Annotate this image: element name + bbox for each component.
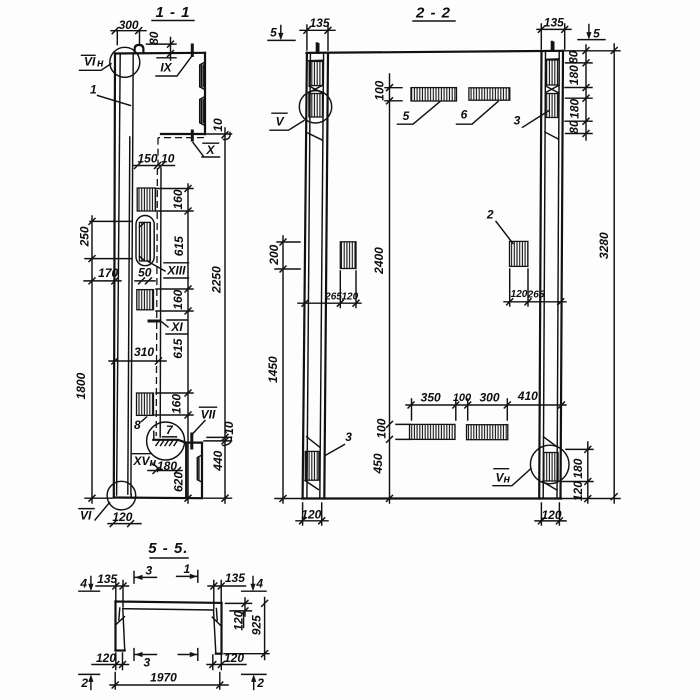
svg-text:80: 80: [147, 31, 161, 45]
svg-text:10: 10: [161, 152, 175, 166]
svg-text:2250: 2250: [210, 266, 224, 294]
svg-text:3280: 3280: [597, 232, 611, 259]
svg-text:120: 120: [511, 289, 528, 300]
svg-text:80: 80: [567, 50, 581, 64]
svg-text:50: 50: [138, 265, 152, 279]
svg-text:1450: 1450: [266, 356, 280, 383]
svg-text:160: 160: [171, 289, 185, 309]
svg-text:н: н: [97, 58, 104, 70]
svg-text:135: 135: [97, 572, 117, 586]
svg-text:100: 100: [374, 418, 388, 438]
svg-text:7: 7: [166, 423, 174, 437]
svg-text:XI: XI: [170, 320, 183, 334]
svg-text:135: 135: [544, 15, 564, 29]
svg-text:180: 180: [568, 98, 582, 118]
svg-text:X: X: [205, 143, 215, 157]
svg-text:6: 6: [461, 108, 468, 122]
svg-text:120: 120: [224, 651, 244, 665]
svg-text:1800: 1800: [74, 372, 88, 399]
svg-text:620: 620: [172, 472, 186, 492]
svg-text:XV: XV: [132, 454, 150, 468]
svg-text:VI: VI: [84, 55, 96, 69]
svg-text:4: 4: [255, 577, 263, 591]
svg-text:135: 135: [225, 571, 245, 585]
svg-text:120: 120: [231, 610, 245, 630]
svg-text:3: 3: [514, 114, 521, 128]
svg-text:VII: VII: [201, 407, 216, 421]
svg-text:410: 410: [517, 389, 538, 403]
svg-text:VI: VI: [80, 508, 92, 522]
svg-text:180: 180: [567, 65, 581, 85]
svg-text:3: 3: [145, 563, 152, 577]
svg-text:2: 2: [80, 676, 88, 690]
svg-text:2: 2: [256, 676, 264, 690]
svg-text:180: 180: [157, 459, 177, 473]
svg-text:н: н: [150, 457, 157, 469]
svg-text:300: 300: [479, 391, 499, 405]
svg-text:3: 3: [345, 430, 352, 444]
svg-text:160: 160: [171, 189, 185, 209]
svg-text:310: 310: [134, 345, 154, 359]
svg-text:100: 100: [373, 80, 387, 100]
svg-text:135: 135: [309, 16, 329, 30]
svg-text:2400: 2400: [372, 247, 386, 275]
svg-text:160: 160: [170, 394, 184, 414]
svg-text:180: 180: [571, 458, 585, 478]
svg-text:5: 5: [593, 27, 600, 41]
svg-text:120: 120: [341, 291, 358, 302]
svg-text:120: 120: [301, 508, 321, 522]
svg-text:120: 120: [541, 508, 561, 522]
svg-text:170: 170: [98, 266, 118, 280]
svg-text:100: 100: [453, 392, 472, 404]
svg-text:440: 440: [211, 450, 225, 471]
svg-text:3: 3: [144, 655, 151, 669]
svg-text:10: 10: [211, 118, 225, 132]
svg-text:XIII: XIII: [166, 264, 186, 278]
svg-text:615: 615: [171, 338, 185, 358]
svg-text:450: 450: [371, 453, 385, 474]
svg-text:2: 2: [486, 207, 494, 221]
svg-text:615: 615: [172, 236, 186, 256]
svg-text:265: 265: [527, 289, 545, 300]
svg-text:1: 1: [90, 82, 97, 96]
svg-text:120: 120: [571, 481, 585, 501]
svg-text:V: V: [276, 115, 285, 129]
svg-text:4: 4: [79, 577, 87, 591]
svg-text:5 - 5.: 5 - 5.: [148, 540, 188, 557]
svg-text:200: 200: [267, 244, 281, 265]
svg-text:250: 250: [78, 226, 92, 247]
svg-text:5: 5: [403, 109, 410, 123]
svg-text:925: 925: [249, 615, 263, 635]
svg-text:265: 265: [324, 291, 342, 302]
svg-text:IX: IX: [160, 60, 172, 74]
svg-text:5: 5: [270, 26, 277, 40]
svg-text:150: 150: [137, 152, 157, 166]
svg-text:1 - 1: 1 - 1: [155, 4, 190, 21]
svg-text:2 - 2: 2 - 2: [415, 5, 451, 22]
svg-text:120: 120: [96, 651, 116, 665]
svg-text:8: 8: [134, 418, 141, 432]
svg-text:1: 1: [184, 562, 191, 576]
svg-text:10: 10: [222, 421, 236, 435]
svg-text:н: н: [504, 473, 511, 485]
svg-text:350: 350: [421, 391, 441, 405]
svg-text:1970: 1970: [150, 671, 177, 685]
svg-text:120: 120: [112, 510, 132, 524]
svg-text:80: 80: [567, 120, 581, 134]
svg-text:300: 300: [119, 18, 139, 32]
